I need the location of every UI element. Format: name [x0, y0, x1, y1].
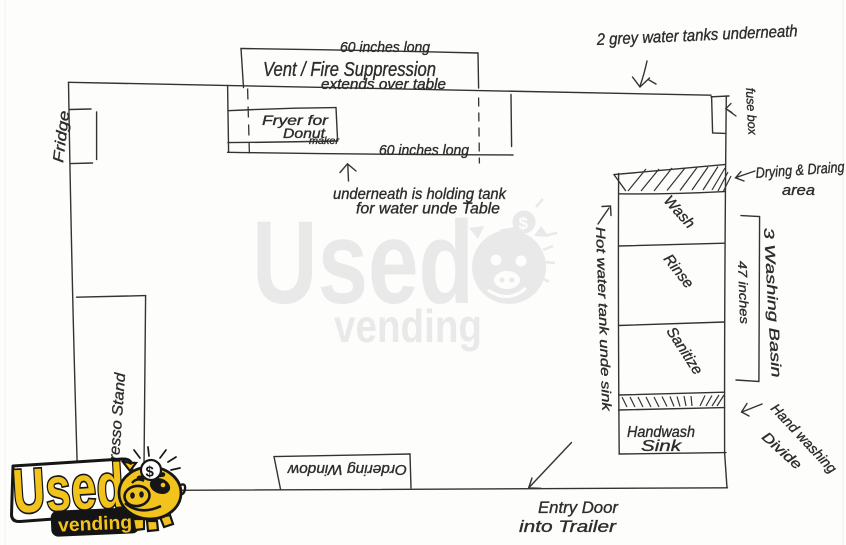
svg-text:vending: vending [58, 512, 133, 536]
svg-text:$: $ [519, 214, 529, 233]
svg-text:Sink: Sink [641, 438, 682, 455]
svg-text:$: $ [146, 464, 155, 481]
svg-text:for water unde Table: for water unde Table [356, 201, 500, 218]
svg-text:Entry Door: Entry Door [538, 498, 619, 517]
svg-text:vending: vending [334, 300, 482, 352]
svg-text:Ordering Window: Ordering Window [287, 461, 407, 478]
svg-text:into Trailer: into Trailer [519, 517, 618, 536]
svg-text:extends over table: extends over table [321, 77, 446, 93]
svg-text:60 inches long: 60 inches long [340, 39, 431, 56]
svg-text:maker: maker [309, 136, 340, 147]
svg-text:60 inches long: 60 inches long [379, 142, 470, 159]
svg-text:47 inches: 47 inches [735, 261, 751, 324]
svg-text:fuse box: fuse box [743, 87, 759, 135]
svg-text:area: area [782, 182, 815, 199]
